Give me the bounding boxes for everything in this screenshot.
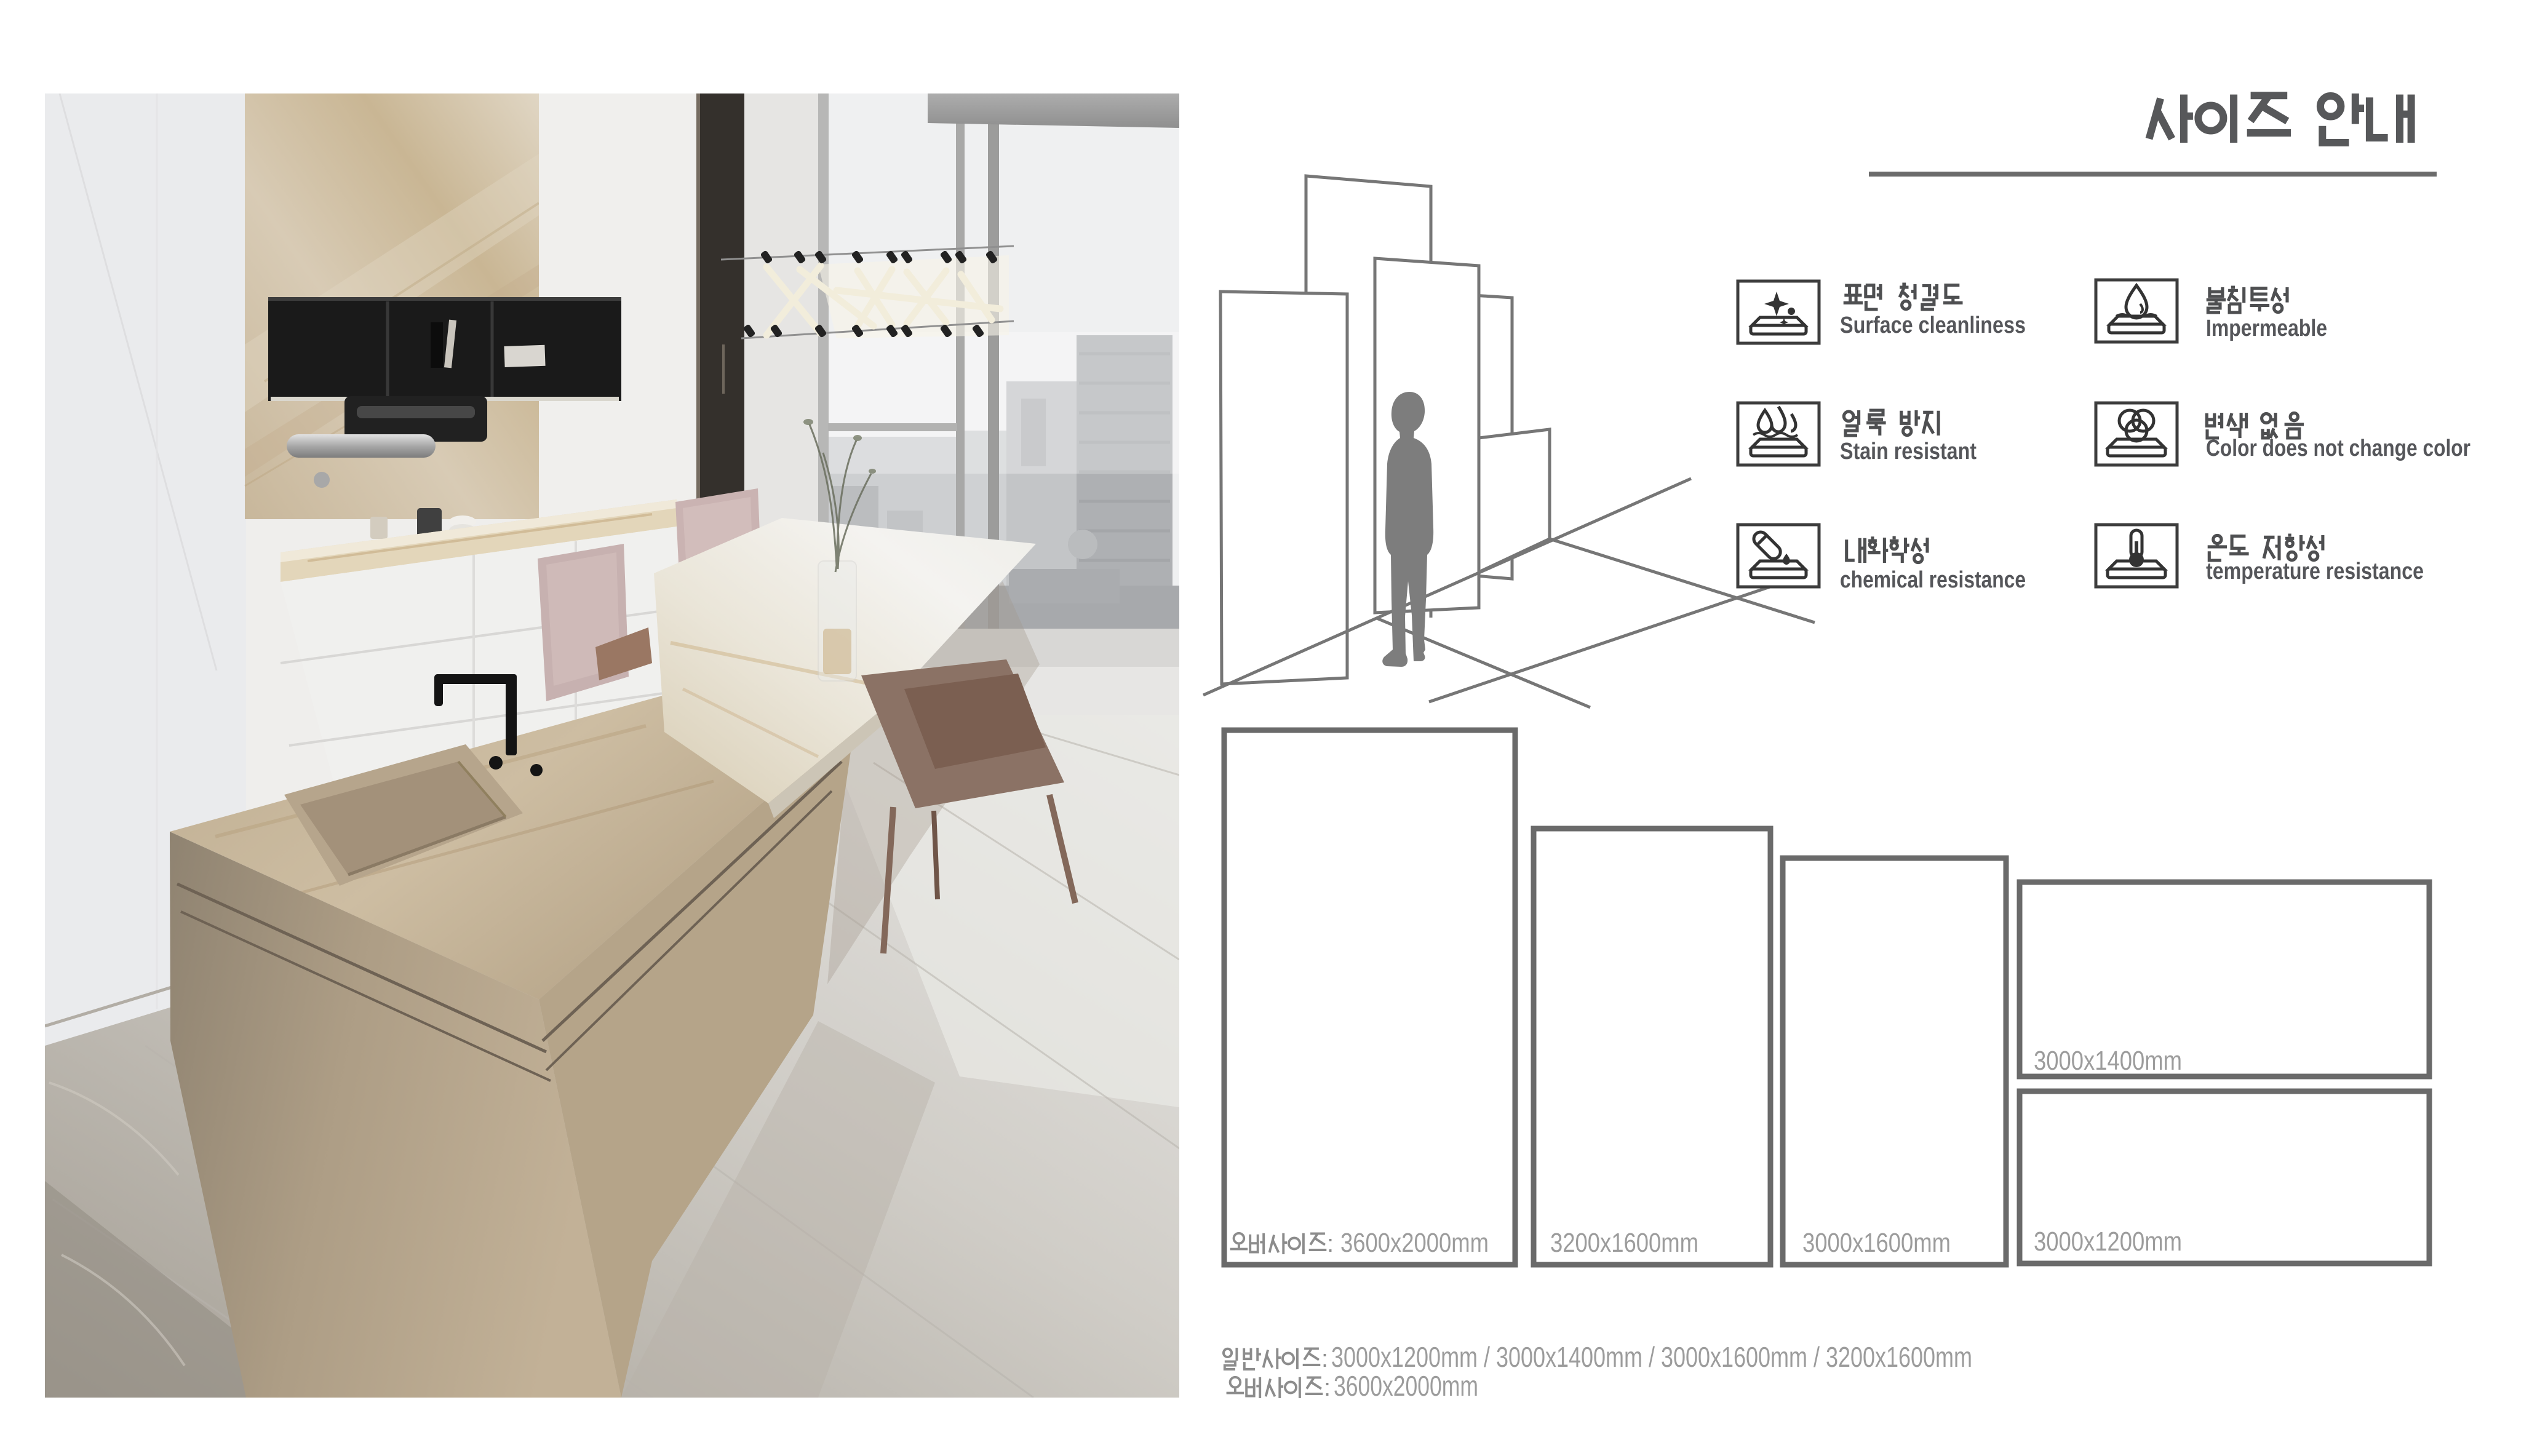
svg-text:3600x2000mm: 3600x2000mm — [1334, 1370, 1478, 1402]
svg-text:Color does not change color: Color does not change color — [2206, 436, 2470, 461]
svg-text:Impermeable: Impermeable — [2206, 316, 2327, 341]
svg-text:3000x1400mm: 3000x1400mm — [2034, 1046, 2182, 1076]
svg-text::: : — [1327, 1230, 1334, 1257]
svg-text::: : — [1321, 1345, 1328, 1372]
svg-text:chemical resistance: chemical resistance — [1840, 567, 2026, 593]
svg-text:Stain resistant: Stain resistant — [1840, 439, 1977, 464]
svg-text:3200x1600mm: 3200x1600mm — [1550, 1228, 1698, 1258]
svg-text:3000x1600mm: 3000x1600mm — [1802, 1228, 1951, 1258]
svg-text:3600x2000mm: 3600x2000mm — [1340, 1228, 1489, 1258]
svg-text:3000x1200mm: 3000x1200mm — [2034, 1227, 2182, 1257]
svg-text:3000x1200mm / 3000x1400mm / 30: 3000x1200mm / 3000x1400mm / 3000x1600mm … — [1331, 1341, 1972, 1373]
svg-text:temperature resistance: temperature resistance — [2206, 559, 2424, 584]
svg-text::: : — [1324, 1374, 1331, 1401]
svg-text:Surface cleanliness: Surface cleanliness — [1840, 312, 2026, 338]
